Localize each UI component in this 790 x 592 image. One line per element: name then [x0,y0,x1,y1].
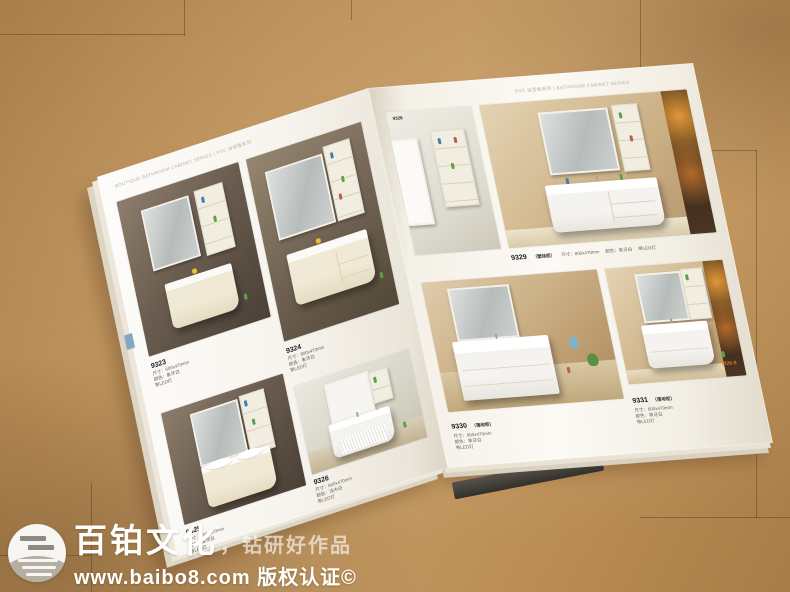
watermark-text: 百铂文化 ，钻研好作品 www.baibo8.com 版权认证© [74,524,357,590]
towel [568,337,578,349]
brand-name: 百铂文化 [74,524,218,560]
mirror [447,284,520,342]
watermark: 百铂文化 ，钻研好作品 www.baibo8.com 版权认证© [8,524,357,590]
product-label: 9330 （落地柜） 尺寸：800x470mm 颜色：象牙白 带LED灯 [449,405,606,452]
mirror [265,153,336,240]
bottle [244,293,248,300]
product-model: 9330 [451,423,468,431]
vanity-cabinet [286,229,377,306]
product-model: 9328 [392,115,403,121]
page-marker: W26-8 [721,360,737,367]
baibo-logo-icon [8,524,66,582]
vanity-cabinet [545,177,667,233]
accent-wall [660,89,716,234]
product-model: 9331 [632,397,649,405]
bottle [379,272,383,279]
vanity-drawers [459,349,555,397]
product-photo-9330 [421,269,624,412]
cardboard-seam [351,0,352,20]
vanity-doors [607,187,658,222]
bottle [565,178,569,184]
product-model: 9329 [510,253,527,263]
product-photo-9323 [116,162,270,357]
mirror [141,195,201,271]
cardboard-seam [640,517,790,518]
cardboard-seam [184,0,185,36]
vanity-cabinet [641,321,716,369]
cardboard-seam [756,150,757,518]
mirror [537,107,620,175]
vanity-drawers [335,242,371,285]
cardboard-background: BOUTIQUE BATHROOM CABINET SERIES | PVC 浴… [0,0,790,592]
cardboard-seam [0,34,185,35]
page-tab [124,333,134,349]
vanity-drawers [647,333,711,365]
product-photo-9329 [479,89,716,248]
product-label: 9331 （落地柜） 尺寸：600x470mm 颜色：象牙白 带LED灯 [630,381,755,425]
vanity-cabinet [164,263,240,330]
brand-url: www.baibo8.com 版权认证© [74,561,357,590]
faucet [595,176,598,181]
bottle [619,174,623,180]
vanity-cabinet [452,335,560,401]
brand-tagline: ，钻研好作品 [220,529,352,558]
